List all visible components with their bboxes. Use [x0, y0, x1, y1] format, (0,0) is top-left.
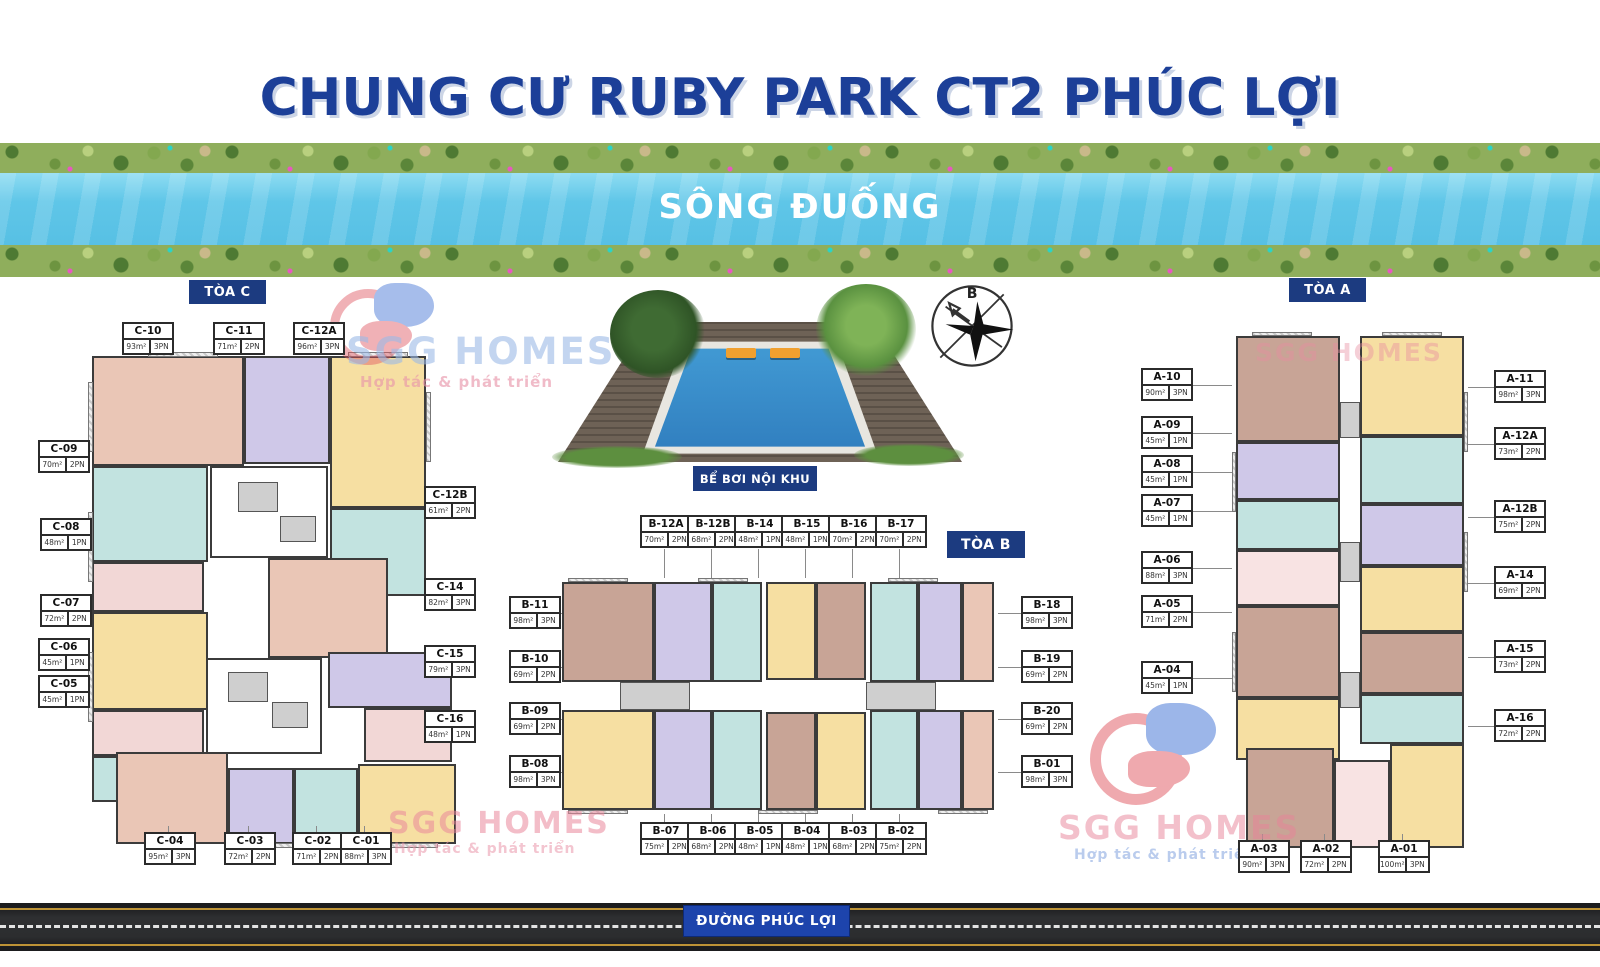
unit-label-C-16: C-1648m²1PN	[424, 710, 476, 743]
unit-area-value: 75m²	[642, 840, 669, 853]
unit-rooms-value: 3PN	[453, 663, 474, 676]
unit-id: B-12B	[689, 517, 737, 533]
service-core	[620, 682, 690, 710]
unit-values: 48m²1PN	[736, 840, 784, 853]
unit-rooms-value: 2PN	[69, 612, 90, 625]
unit-values: 45m²1PN	[1143, 679, 1191, 692]
unit-label-A-01: A-01100m²3PN	[1378, 840, 1430, 873]
unit-area-value: 69m²	[1496, 584, 1523, 597]
river-strip: SÔNG ĐUỐNG	[0, 143, 1600, 277]
unit-label-A-09: A-0945m²1PN	[1141, 416, 1193, 449]
unit-area-value: 45m²	[1143, 473, 1170, 486]
unit-label-B-08: B-0898m²3PN	[509, 755, 561, 788]
unit-label-A-04: A-0445m²1PN	[1141, 661, 1193, 694]
apartment-unit-area	[654, 582, 712, 682]
unit-rooms-value: 2PN	[253, 850, 274, 863]
unit-id: B-18	[1023, 598, 1071, 614]
unit-id: B-05	[736, 824, 784, 840]
unit-area-value: 90m²	[1240, 858, 1267, 871]
unit-id: C-12A	[295, 324, 343, 340]
unit-values: 69m²2PN	[511, 668, 559, 681]
unit-rooms-value: 1PN	[1170, 434, 1191, 447]
unit-id: C-04	[146, 834, 194, 850]
unit-id: A-05	[1143, 597, 1191, 613]
unit-rooms-value: 3PN	[1267, 858, 1288, 871]
unit-values: 98m²3PN	[511, 773, 559, 786]
unit-values: 45m²1PN	[1143, 512, 1191, 525]
unit-rooms-value: 3PN	[322, 340, 343, 353]
unit-values: 98m²3PN	[511, 614, 559, 627]
svg-text:B: B	[967, 286, 978, 302]
leader-line	[998, 719, 1021, 720]
apartment-unit-area	[1236, 442, 1340, 500]
leader-line	[664, 549, 665, 578]
pool-image	[558, 298, 962, 474]
unit-area-value: 88m²	[342, 850, 369, 863]
unit-label-C-04: C-0495m²3PN	[144, 832, 196, 865]
unit-rooms-value: 3PN	[1407, 858, 1428, 871]
unit-values: 45m²1PN	[1143, 434, 1191, 447]
unit-label-C-11: C-1171m²2PN	[213, 322, 265, 355]
unit-rooms-value: 2PN	[1523, 445, 1544, 458]
unit-label-C-10: C-1093m²3PN	[122, 322, 174, 355]
unit-label-C-12A: C-12A96m²3PN	[293, 322, 345, 355]
road-edge-line	[0, 944, 1600, 946]
unit-id: C-06	[40, 640, 88, 656]
unit-values: 68m²2PN	[689, 533, 737, 546]
unit-label-B-01: B-0198m²3PN	[1021, 755, 1073, 788]
unit-values: 71m²2PN	[215, 340, 263, 353]
unit-area-value: 69m²	[1023, 668, 1050, 681]
unit-rooms-value: 3PN	[453, 596, 474, 609]
leader-line	[1189, 511, 1232, 512]
unit-rooms-value: 1PN	[1170, 473, 1191, 486]
apartment-unit-area	[1360, 504, 1464, 566]
unit-values: 90m²3PN	[1143, 386, 1191, 399]
unit-area-value: 48m²	[736, 840, 763, 853]
unit-id: B-01	[1023, 757, 1071, 773]
unit-id: B-11	[511, 598, 559, 614]
unit-values: 72m²2PN	[42, 612, 90, 625]
apartment-unit-area	[1236, 336, 1340, 442]
unit-rooms-value: 3PN	[369, 850, 390, 863]
unit-id: B-03	[830, 824, 878, 840]
unit-area-value: 79m²	[426, 663, 453, 676]
leader-line	[899, 814, 900, 822]
unit-label-B-07: B-0775m²2PN	[640, 822, 692, 855]
unit-id: C-14	[426, 580, 474, 596]
leader-line	[805, 549, 806, 578]
leader-line	[1468, 726, 1494, 727]
unit-area-value: 70m²	[40, 458, 67, 471]
apartment-unit-area	[1236, 550, 1340, 606]
unit-label-C-12B: C-12B61m²2PN	[424, 486, 476, 519]
unit-values: 72m²2PN	[1496, 727, 1544, 740]
unit-area-value: 48m²	[783, 840, 810, 853]
unit-id: A-14	[1496, 568, 1544, 584]
unit-values: 69m²2PN	[1023, 668, 1071, 681]
unit-id: C-15	[426, 647, 474, 663]
apartment-unit-area	[1246, 748, 1334, 848]
unit-values: 93m²3PN	[124, 340, 172, 353]
unit-rooms-value: 2PN	[67, 458, 88, 471]
unit-rooms-value: 2PN	[904, 840, 925, 853]
leader-line	[758, 549, 759, 578]
unit-values: 48m²1PN	[783, 840, 831, 853]
road-badge: ĐƯỜNG PHÚC LỢI	[683, 905, 850, 937]
apartment-unit-area	[766, 712, 816, 810]
unit-area-value: 75m²	[877, 840, 904, 853]
unit-area-value: 61m²	[426, 504, 453, 517]
unit-id: B-19	[1023, 652, 1071, 668]
unit-rooms-value: 2PN	[1523, 518, 1544, 531]
unit-id: B-15	[783, 517, 831, 533]
service-core	[1340, 542, 1360, 582]
unit-values: 45m²1PN	[40, 693, 88, 706]
unit-rooms-value: 3PN	[151, 340, 172, 353]
balcony-hatch	[1232, 632, 1236, 692]
apartment-unit-area	[92, 356, 244, 466]
unit-area-value: 72m²	[226, 850, 253, 863]
apartment-unit-area	[816, 712, 866, 810]
unit-label-B-11: B-1198m²3PN	[509, 596, 561, 629]
unit-id: C-02	[294, 834, 342, 850]
service-core	[866, 682, 936, 710]
unit-area-value: 48m²	[42, 536, 69, 549]
leader-line	[1468, 387, 1494, 388]
apartment-unit-area	[1334, 760, 1390, 848]
unit-rooms-value: 1PN	[1170, 679, 1191, 692]
unit-id: B-12A	[642, 517, 690, 533]
unit-area-value: 45m²	[1143, 679, 1170, 692]
apartment-unit-area	[1360, 632, 1464, 694]
unit-label-A-15: A-1573m²2PN	[1494, 640, 1546, 673]
unit-id: B-16	[830, 517, 878, 533]
unit-id: C-08	[42, 520, 90, 536]
unit-area-value: 45m²	[1143, 512, 1170, 525]
leader-line	[1468, 583, 1494, 584]
unit-rooms-value: 3PN	[173, 850, 194, 863]
leader-line	[664, 814, 665, 822]
service-core	[1340, 672, 1360, 708]
unit-label-B-14: B-1448m²1PN	[734, 515, 786, 548]
unit-values: 70m²2PN	[642, 533, 690, 546]
unit-area-value: 69m²	[511, 668, 538, 681]
unit-values: 70m²2PN	[830, 533, 878, 546]
unit-rooms-value: 2PN	[1329, 858, 1350, 871]
unit-label-A-10: A-1090m²3PN	[1141, 368, 1193, 401]
unit-values: 96m²3PN	[295, 340, 343, 353]
unit-label-A-12B: A-12B75m²2PN	[1494, 500, 1546, 533]
leader-line	[1468, 517, 1494, 518]
unit-values: 75m²2PN	[1496, 518, 1544, 531]
balcony-hatch	[758, 810, 818, 814]
leader-line	[1189, 612, 1232, 613]
unit-rooms-value: 2PN	[538, 668, 559, 681]
unit-label-B-18: B-1898m²3PN	[1021, 596, 1073, 629]
unit-id: B-20	[1023, 704, 1071, 720]
unit-area-value: 48m²	[783, 533, 810, 546]
unit-label-C-03: C-0372m²2PN	[224, 832, 276, 865]
unit-label-B-05: B-0548m²1PN	[734, 822, 786, 855]
leader-line	[758, 814, 759, 822]
grass-patch	[552, 446, 682, 468]
unit-area-value: 71m²	[1143, 613, 1170, 626]
unit-area-value: 82m²	[426, 596, 453, 609]
apartment-unit-area	[92, 710, 204, 756]
leader-line	[998, 772, 1021, 773]
unit-area-value: 71m²	[215, 340, 242, 353]
unit-rooms-value: 2PN	[1050, 668, 1071, 681]
apartment-unit-area	[92, 612, 208, 710]
balcony-hatch	[568, 810, 628, 814]
unit-id: B-09	[511, 704, 559, 720]
unit-rooms-value: 1PN	[453, 728, 474, 741]
unit-label-A-12A: A-12A73m²2PN	[1494, 427, 1546, 460]
unit-area-value: 69m²	[1023, 720, 1050, 733]
plant-icon	[816, 284, 916, 376]
unit-id: C-10	[124, 324, 172, 340]
unit-rooms-value: 2PN	[1523, 584, 1544, 597]
unit-label-B-02: B-0275m²2PN	[875, 822, 927, 855]
unit-values: 79m²3PN	[426, 663, 474, 676]
unit-values: 48m²1PN	[426, 728, 474, 741]
unit-label-B-10: B-1069m²2PN	[509, 650, 561, 683]
unit-values: 82m²3PN	[426, 596, 474, 609]
unit-area-value: 70m²	[830, 533, 857, 546]
leader-line	[1189, 568, 1232, 569]
service-core	[238, 482, 278, 512]
river-bank-top	[0, 143, 1600, 173]
sun-lounger-icon	[770, 348, 800, 358]
leader-line	[1189, 385, 1232, 386]
unit-id: A-04	[1143, 663, 1191, 679]
unit-area-value: 98m²	[511, 614, 538, 627]
unit-rooms-value: 2PN	[1170, 613, 1191, 626]
apartment-unit-area	[116, 752, 228, 844]
watermark-logo	[330, 283, 440, 358]
compass-icon: B	[928, 282, 1016, 370]
unit-id: A-12A	[1496, 429, 1544, 445]
unit-area-value: 98m²	[1023, 614, 1050, 627]
balcony-hatch	[426, 392, 431, 462]
unit-label-A-16: A-1672m²2PN	[1494, 709, 1546, 742]
tower-c-floorplan	[88, 352, 470, 848]
unit-id: A-03	[1240, 842, 1288, 858]
unit-values: 45m²1PN	[40, 656, 88, 669]
grass-patch	[854, 444, 964, 466]
sun-lounger-icon	[726, 348, 756, 358]
apartment-unit-area	[870, 582, 918, 682]
unit-rooms-value: 1PN	[67, 656, 88, 669]
unit-area-value: 68m²	[689, 840, 716, 853]
unit-label-B-12B: B-12B68m²2PN	[687, 515, 739, 548]
unit-area-value: 73m²	[1496, 658, 1523, 671]
unit-label-A-11: A-1198m²3PN	[1494, 370, 1546, 403]
apartment-unit-area	[1360, 566, 1464, 632]
service-core	[280, 516, 316, 542]
apartment-unit-area	[918, 710, 962, 810]
unit-rooms-value: 3PN	[538, 614, 559, 627]
apartment-unit-area	[268, 558, 388, 658]
unit-rooms-value: 2PN	[242, 340, 263, 353]
unit-label-C-09: C-0970m²2PN	[38, 440, 90, 473]
service-core	[210, 466, 328, 558]
apartment-unit-area	[712, 582, 762, 682]
leader-line	[1189, 472, 1232, 473]
unit-values: 45m²1PN	[1143, 473, 1191, 486]
unit-values: 98m²3PN	[1496, 388, 1544, 401]
unit-id: A-08	[1143, 457, 1191, 473]
unit-id: B-07	[642, 824, 690, 840]
unit-id: B-04	[783, 824, 831, 840]
unit-rooms-value: 2PN	[321, 850, 342, 863]
site-plan-page: CHUNG CƯ RUBY PARK CT2 PHÚC LỢI SÔNG ĐUỐ…	[0, 0, 1600, 967]
unit-id: B-02	[877, 824, 925, 840]
unit-id: C-16	[426, 712, 474, 728]
unit-label-A-14: A-1469m²2PN	[1494, 566, 1546, 599]
unit-label-B-12A: B-12A70m²2PN	[640, 515, 692, 548]
unit-area-value: 70m²	[642, 533, 669, 546]
apartment-unit-area	[1236, 606, 1340, 698]
apartment-unit-area	[1360, 336, 1464, 436]
unit-id: A-07	[1143, 496, 1191, 512]
apartment-unit-area	[918, 582, 962, 682]
leader-line	[1189, 433, 1232, 434]
unit-id: B-06	[689, 824, 737, 840]
leader-line	[852, 549, 853, 578]
unit-rooms-value: 3PN	[1523, 388, 1544, 401]
unit-values: 73m²2PN	[1496, 658, 1544, 671]
unit-values: 100m²3PN	[1380, 858, 1428, 871]
apartment-unit-area	[1360, 694, 1464, 744]
unit-values: 48m²1PN	[783, 533, 831, 546]
tower-b-badge: TÒA B	[947, 531, 1025, 558]
leader-line	[1468, 444, 1494, 445]
unit-label-B-09: B-0969m²2PN	[509, 702, 561, 735]
unit-area-value: 69m²	[511, 720, 538, 733]
unit-label-B-03: B-0368m²2PN	[828, 822, 880, 855]
unit-area-value: 100m²	[1380, 858, 1407, 871]
unit-rooms-value: 3PN	[538, 773, 559, 786]
unit-area-value: 45m²	[1143, 434, 1170, 447]
unit-label-B-19: B-1969m²2PN	[1021, 650, 1073, 683]
unit-values: 72m²2PN	[226, 850, 274, 863]
balcony-hatch	[1464, 392, 1468, 452]
unit-label-C-01: C-0188m²3PN	[340, 832, 392, 865]
unit-area-value: 45m²	[40, 656, 67, 669]
apartment-unit-area	[962, 582, 994, 682]
unit-id: C-03	[226, 834, 274, 850]
unit-id: A-10	[1143, 370, 1191, 386]
apartment-unit-area	[92, 562, 204, 612]
unit-label-C-02: C-0271m²2PN	[292, 832, 344, 865]
apartment-unit-area	[562, 582, 654, 682]
unit-rooms-value: 3PN	[1170, 569, 1191, 582]
unit-rooms-value: 3PN	[1050, 773, 1071, 786]
unit-rooms-value: 1PN	[67, 693, 88, 706]
apartment-unit-area	[1236, 500, 1340, 550]
unit-id: A-15	[1496, 642, 1544, 658]
unit-label-A-05: A-0571m²2PN	[1141, 595, 1193, 628]
leader-line	[711, 814, 712, 822]
unit-id: A-02	[1302, 842, 1350, 858]
unit-values: 72m²2PN	[1302, 858, 1350, 871]
unit-id: B-17	[877, 517, 925, 533]
unit-values: 69m²2PN	[1496, 584, 1544, 597]
apartment-unit-area	[962, 710, 994, 810]
apartment-unit-area	[766, 582, 816, 680]
unit-area-value: 98m²	[511, 773, 538, 786]
unit-area-value: 68m²	[689, 533, 716, 546]
unit-label-A-08: A-0845m²1PN	[1141, 455, 1193, 488]
unit-id: C-11	[215, 324, 263, 340]
unit-values: 68m²2PN	[830, 840, 878, 853]
unit-label-C-15: C-1579m²3PN	[424, 645, 476, 678]
unit-label-C-06: C-0645m²1PN	[38, 638, 90, 671]
apartment-unit-area	[330, 356, 426, 508]
unit-label-B-17: B-1770m²2PN	[875, 515, 927, 548]
unit-id: C-01	[342, 834, 390, 850]
unit-values: 88m²3PN	[342, 850, 390, 863]
unit-area-value: 98m²	[1023, 773, 1050, 786]
page-title: CHUNG CƯ RUBY PARK CT2 PHÚC LỢI	[0, 68, 1600, 128]
apartment-unit-area	[712, 710, 762, 810]
tower-a-floorplan	[1232, 332, 1468, 852]
unit-area-value: 96m²	[295, 340, 322, 353]
tower-c-badge: TÒA C	[189, 280, 266, 304]
unit-id: C-09	[40, 442, 88, 458]
unit-rooms-value: 2PN	[904, 533, 925, 546]
balcony-hatch	[1232, 452, 1236, 512]
unit-area-value: 88m²	[1143, 569, 1170, 582]
unit-values: 61m²2PN	[426, 504, 474, 517]
unit-values: 95m²3PN	[146, 850, 194, 863]
apartment-unit-area	[92, 466, 208, 562]
balcony-hatch	[568, 578, 628, 582]
unit-values: 88m²3PN	[1143, 569, 1191, 582]
balcony-hatch	[348, 352, 408, 357]
unit-area-value: 71m²	[294, 850, 321, 863]
unit-label-B-06: B-0668m²2PN	[687, 822, 739, 855]
unit-values: 98m²3PN	[1023, 614, 1071, 627]
unit-values: 75m²2PN	[877, 840, 925, 853]
unit-values: 69m²2PN	[1023, 720, 1071, 733]
leader-line	[805, 814, 806, 822]
unit-label-B-20: B-2069m²2PN	[1021, 702, 1073, 735]
unit-values: 48m²1PN	[736, 533, 784, 546]
unit-rooms-value: 3PN	[1050, 614, 1071, 627]
service-core	[272, 702, 308, 728]
unit-area-value: 98m²	[1496, 388, 1523, 401]
apartment-unit-area	[1390, 744, 1464, 848]
service-core	[228, 672, 268, 702]
leader-line	[711, 549, 712, 578]
unit-area-value: 73m²	[1496, 445, 1523, 458]
balcony-hatch	[888, 578, 938, 582]
unit-label-C-05: C-0545m²1PN	[38, 675, 90, 708]
unit-values: 90m²3PN	[1240, 858, 1288, 871]
unit-area-value: 48m²	[736, 533, 763, 546]
leader-line	[899, 549, 900, 578]
unit-id: B-10	[511, 652, 559, 668]
unit-rooms-value: 1PN	[69, 536, 90, 549]
unit-label-B-15: B-1548m²1PN	[781, 515, 833, 548]
unit-rooms-value: 1PN	[1170, 512, 1191, 525]
unit-values: 70m²2PN	[877, 533, 925, 546]
unit-label-C-08: C-0848m²1PN	[40, 518, 92, 551]
balcony-hatch	[1382, 332, 1442, 336]
